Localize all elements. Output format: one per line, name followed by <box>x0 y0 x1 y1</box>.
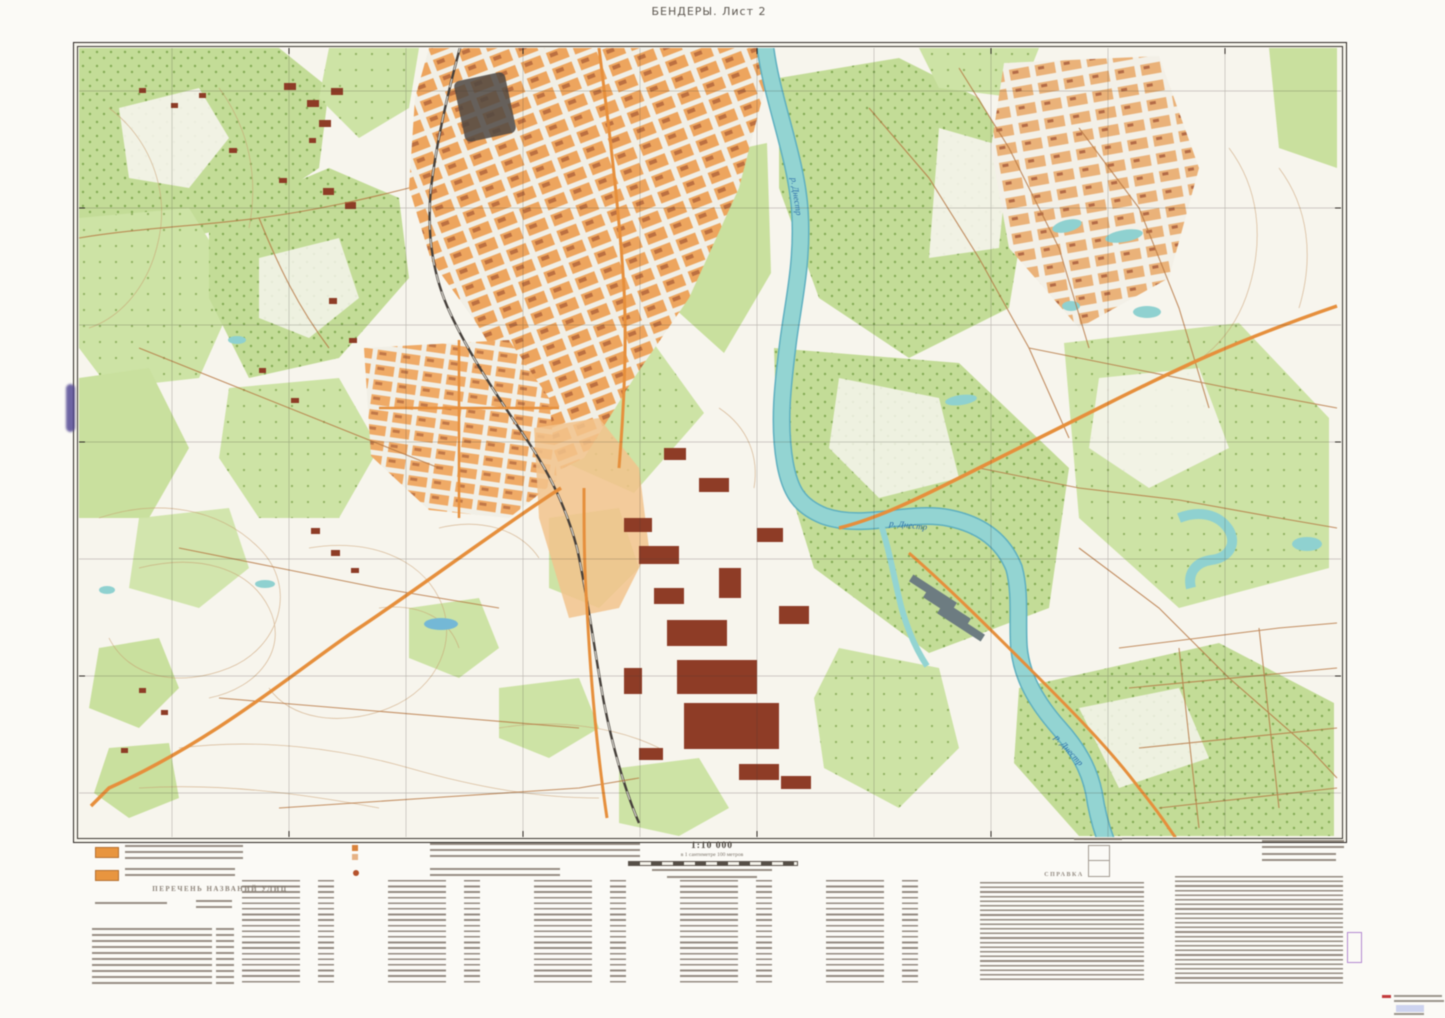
index-col-refs-6 <box>902 880 918 984</box>
index-col-refs-3 <box>464 880 480 984</box>
index-col-names-1 <box>92 928 212 986</box>
index-col-names-3 <box>388 880 446 984</box>
index-col-refs-5 <box>756 880 772 984</box>
index-col-refs-1 <box>216 928 234 986</box>
legend-symbol-building <box>352 845 358 851</box>
legend-swatch-industrial <box>95 870 119 881</box>
sheet-diagram-caption <box>1074 838 1122 843</box>
map-frame: р. Днестр р. Днестр р. Днестр <box>73 42 1347 843</box>
legend-text-2 <box>430 843 640 859</box>
index-col-names-4 <box>534 880 592 984</box>
index-col-names-6 <box>826 880 884 984</box>
legend-text-1 <box>125 845 243 861</box>
sheet-title: БЕНДЕРЫ. Лист 2 <box>73 5 1345 18</box>
topographic-map-canvas: р. Днестр р. Днестр р. Днестр <box>79 48 1341 837</box>
edition-note-1 <box>1262 840 1344 850</box>
legend-symbol-building-2 <box>352 854 358 860</box>
scale-bar <box>628 861 798 866</box>
legend-swatch-urban <box>95 847 119 858</box>
index-col-header-1 <box>95 902 167 908</box>
scale-note-1 <box>652 869 772 874</box>
reference-paragraph-2 <box>1175 876 1343 984</box>
index-col-refs-2 <box>318 880 334 984</box>
watermark-highlight <box>1396 1005 1424 1012</box>
legend-text-4 <box>430 868 560 879</box>
index-col-names-5 <box>680 880 738 984</box>
ink-mark <box>66 384 75 432</box>
reference-paragraph-1 <box>980 882 1144 982</box>
scale-label: 1:10 000 <box>617 841 807 851</box>
scale-caption: в 1 сантиметре 100 метров <box>617 852 807 858</box>
index-col-names-2 <box>242 880 300 984</box>
street-index-title: ПЕРЕЧЕНЬ НАЗВАНИЙ УЛИЦ <box>90 885 350 893</box>
map-sheet-page: БЕНДЕРЫ. Лист 2 <box>0 0 1445 1018</box>
index-col-header-2 <box>196 900 232 910</box>
index-col-refs-4 <box>610 880 626 984</box>
legend-symbol-dot <box>353 870 359 876</box>
margin-annotation-box <box>1347 932 1362 963</box>
legend-text-3 <box>125 868 235 879</box>
edition-note-2 <box>1262 853 1336 863</box>
reference-title: СПРАВКА <box>1000 872 1128 878</box>
